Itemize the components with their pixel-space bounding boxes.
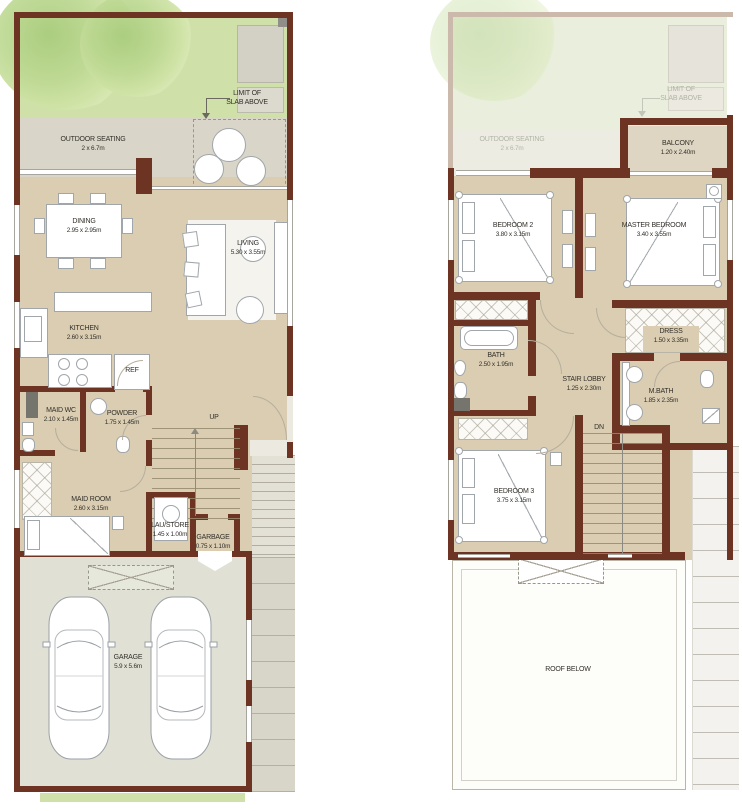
toilet: [454, 382, 467, 399]
nightstand: [550, 452, 562, 466]
bedroom2-window: [456, 170, 530, 176]
vanity-sink: [626, 366, 643, 383]
bed-pillow: [462, 240, 475, 272]
bed-pillow: [462, 494, 475, 524]
stair-rail: [622, 433, 623, 554]
vanity-sink: [626, 404, 643, 421]
wall-segment: [136, 158, 152, 194]
wc-sink: [22, 422, 34, 436]
window: [14, 205, 20, 255]
wall-segment: [620, 118, 733, 125]
roof-below-label: ROOF BELOW: [532, 666, 604, 675]
bedroom3-label: BEDROOM 33.75 x 3.15m: [486, 488, 542, 504]
wall-segment: [14, 12, 293, 18]
grass-strip: [40, 793, 245, 802]
stove-burner: [58, 374, 70, 386]
shaft: [454, 398, 470, 411]
ghost-equipment-pad: [668, 25, 724, 83]
wall-segment: [14, 786, 246, 792]
sliding-door: [152, 186, 287, 190]
stove-burner: [76, 358, 88, 370]
car-icon: [144, 594, 218, 762]
outdoor-seating-label: OUTDOOR SEATING2 x 6.7m: [50, 136, 136, 152]
stair-rail: [195, 430, 196, 516]
laundry-store-label: LAU/STORE1.45 x 1.00m: [146, 522, 194, 538]
window: [448, 460, 454, 520]
bed-pillow: [703, 206, 716, 238]
entry-steps-zone: [252, 455, 295, 557]
entry-opening: [287, 396, 293, 442]
bed-pillow: [703, 244, 716, 276]
window: [14, 470, 20, 528]
balcony-sliding-door: [630, 171, 712, 176]
bathtub-inner: [464, 330, 514, 346]
wall-segment: [662, 433, 670, 560]
wall-segment: [612, 300, 733, 308]
bed-throw: [630, 202, 678, 282]
shower: [702, 408, 720, 424]
ghost-limit-of-slab-label: LIMIT OFSLAB ABOVE: [650, 86, 712, 103]
limit-of-slab-label: LIMIT OFSLAB ABOVE: [211, 90, 283, 107]
equipment-pad: [237, 25, 284, 83]
maid-room-label: MAID ROOM2.60 x 3.15m: [62, 496, 120, 512]
floor-plan-canvas: LIMIT OFSLAB ABOVE OUTDOOR SEATING2 x 6.…: [0, 0, 742, 811]
ghost-outdoor-seating-label: OUTDOOR SEATING2 x 6.7m: [469, 136, 555, 152]
sofa-cushion: [183, 261, 199, 277]
patio-window: [20, 169, 136, 175]
window: [458, 554, 510, 558]
leader-arrow-icon: [202, 113, 210, 119]
ghost-leader-line: [642, 98, 643, 112]
nightstand: [585, 247, 596, 271]
maid-wc-label: MAID WC2.10 x 1.45m: [35, 407, 87, 423]
wall-segment: [727, 115, 733, 560]
dress-label: DRESS1.50 x 3.35m: [645, 328, 697, 344]
bed-post: [455, 191, 463, 199]
dining-label: DINING2.95 x 2.95m: [56, 218, 112, 234]
window: [727, 200, 733, 260]
bed-post: [540, 536, 548, 544]
car-icon: [42, 594, 116, 762]
nightstand: [562, 210, 573, 234]
balcony-label: BALCONY1.20 x 2.40m: [644, 140, 712, 156]
bed-post: [623, 280, 631, 288]
wall-segment: [575, 415, 583, 560]
bed-throw: [70, 518, 108, 554]
garbage-label: GARBAGE0.75 x 1.10m: [189, 534, 237, 550]
stove-burner: [58, 358, 70, 370]
window: [448, 200, 454, 260]
wardrobe: [458, 418, 528, 440]
wardrobe: [22, 462, 52, 520]
dining-chair: [58, 193, 74, 204]
nightstand: [112, 516, 124, 530]
bed-pillow: [462, 202, 475, 234]
wall-segment: [448, 292, 540, 300]
leader-line: [206, 98, 207, 114]
master-bedroom-label: MASTER BEDROOM3.40 x 3.55m: [614, 222, 694, 238]
stair-lobby-label: STAIR LOBBY1.25 x 2.30m: [556, 376, 612, 392]
bed-pillow: [462, 458, 475, 488]
washer-drum: [162, 505, 180, 523]
bed-post: [623, 195, 631, 203]
driveway-zone: [252, 557, 295, 792]
stove-burner: [76, 374, 88, 386]
toilet: [22, 438, 35, 452]
garage-label: GARAGE5.9 x 5.6m: [100, 654, 156, 670]
wall-segment: [14, 12, 20, 792]
canopy-outline: [518, 558, 604, 584]
living-label: LIVING5.30 x 3.55m: [222, 240, 274, 256]
wall-segment: [14, 450, 55, 456]
bedroom2-label: BEDROOM 23.80 x 3.15m: [483, 222, 543, 238]
stair-direction-arrow-icon: [191, 428, 199, 434]
dresser-bowl: [709, 186, 719, 196]
bed-post: [455, 536, 463, 544]
kitchen-sink: [24, 316, 42, 342]
ghost-wall-segment: [448, 12, 453, 168]
bed-post: [546, 191, 554, 199]
dining-chair: [34, 218, 45, 234]
wall-segment: [680, 353, 727, 361]
bath-label: BATH2.50 x 1.95m: [470, 352, 522, 368]
patio-chair: [236, 156, 266, 186]
nightstand: [585, 213, 596, 237]
window: [608, 554, 632, 558]
wall-segment: [575, 168, 583, 298]
wardrobe: [455, 300, 528, 320]
dining-chair: [90, 193, 106, 204]
kitchen-label: KITCHEN2.60 x 3.15m: [56, 325, 112, 341]
entry-landing: [250, 440, 287, 456]
patio-chair: [194, 154, 224, 184]
nightstand: [562, 244, 573, 268]
garage-window: [246, 620, 252, 680]
dn-label: DN: [588, 424, 610, 433]
powder-label: POWDER1.75 x 1.45m: [96, 410, 148, 426]
sofa-cushion: [182, 231, 199, 248]
bed-pillow: [27, 520, 40, 550]
ghost-leader-arrow-icon: [638, 111, 646, 117]
wall-segment: [615, 425, 670, 433]
bed-post: [714, 280, 722, 288]
bed-post: [546, 276, 554, 284]
mbath-label: M.BATH1.85 x 2.35m: [635, 388, 687, 404]
dining-chair: [58, 258, 74, 269]
wall-segment: [712, 168, 727, 178]
tv-unit: [274, 222, 288, 314]
bed-post: [455, 447, 463, 455]
canopy-outline: [88, 565, 174, 590]
sofa-cushion: [185, 291, 203, 309]
toilet: [700, 370, 714, 388]
roof-inner-outline: [461, 569, 677, 781]
pouf: [236, 296, 264, 324]
dining-chair: [122, 218, 133, 234]
dining-chair: [90, 258, 106, 269]
kitchen-island: [54, 292, 152, 312]
up-label: UP: [202, 414, 226, 423]
bed-post: [455, 276, 463, 284]
ghost-wall-segment: [450, 12, 733, 17]
ref-label: REF: [114, 367, 150, 376]
garage-window: [246, 706, 252, 742]
